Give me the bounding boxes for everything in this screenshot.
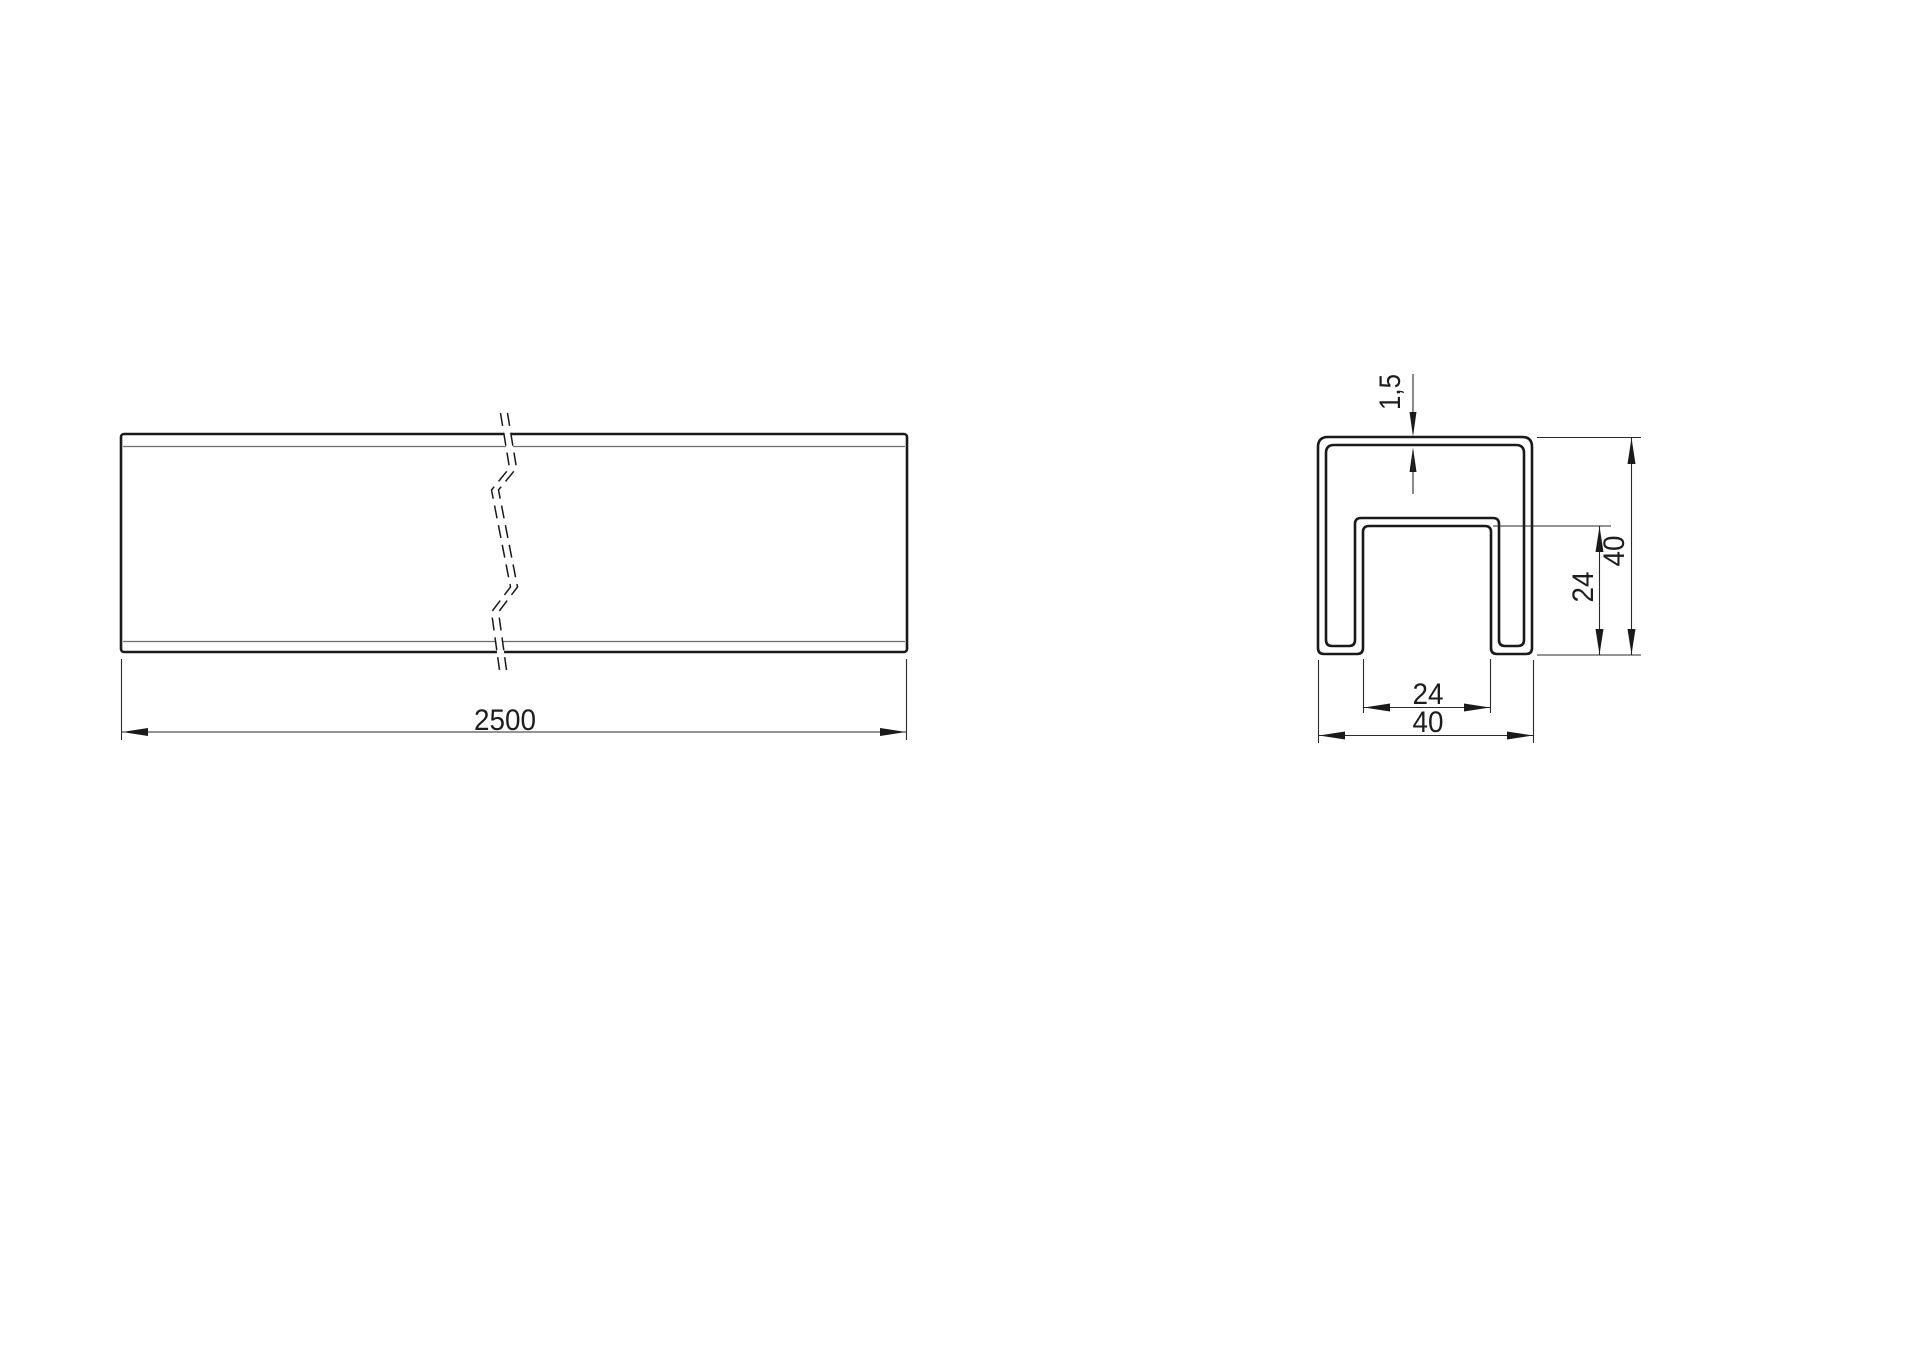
height-dimension-label: 40 — [1598, 536, 1631, 567]
technical-drawing: 2500 1,5 24 40 — [0, 0, 1920, 1356]
thickness-arrow-down — [1410, 412, 1417, 437]
slot-depth-arrow-down — [1596, 629, 1604, 655]
side-view: 2500 — [121, 413, 907, 740]
width-dimension-label: 40 — [1413, 706, 1444, 739]
break-line-mask — [492, 413, 518, 670]
length-arrow-left — [122, 728, 148, 736]
thickness-dimension: 1,5 — [1374, 374, 1417, 494]
section-inner-contour — [1326, 445, 1524, 646]
thickness-dimension-label: 1,5 — [1374, 374, 1407, 410]
right-dimensions: 24 40 — [1493, 438, 1641, 656]
height-arrow-up — [1628, 438, 1636, 464]
length-arrow-right — [880, 728, 906, 736]
slot-depth-dimension-label: 24 — [1567, 572, 1600, 603]
drawing-sheet: 2500 1,5 24 40 — [0, 0, 1920, 1356]
height-arrow-down — [1628, 629, 1636, 655]
width-arrow-left — [1319, 732, 1345, 740]
slot-width-arrow-left — [1364, 704, 1390, 712]
width-arrow-right — [1507, 732, 1533, 740]
break-line — [492, 413, 518, 670]
length-dimension-label: 2500 — [474, 704, 536, 737]
length-dimension: 2500 — [122, 659, 907, 740]
slot-width-arrow-right — [1464, 704, 1490, 712]
bottom-dimensions: 24 40 — [1319, 659, 1534, 743]
section-view: 1,5 24 40 24 — [1318, 374, 1641, 743]
